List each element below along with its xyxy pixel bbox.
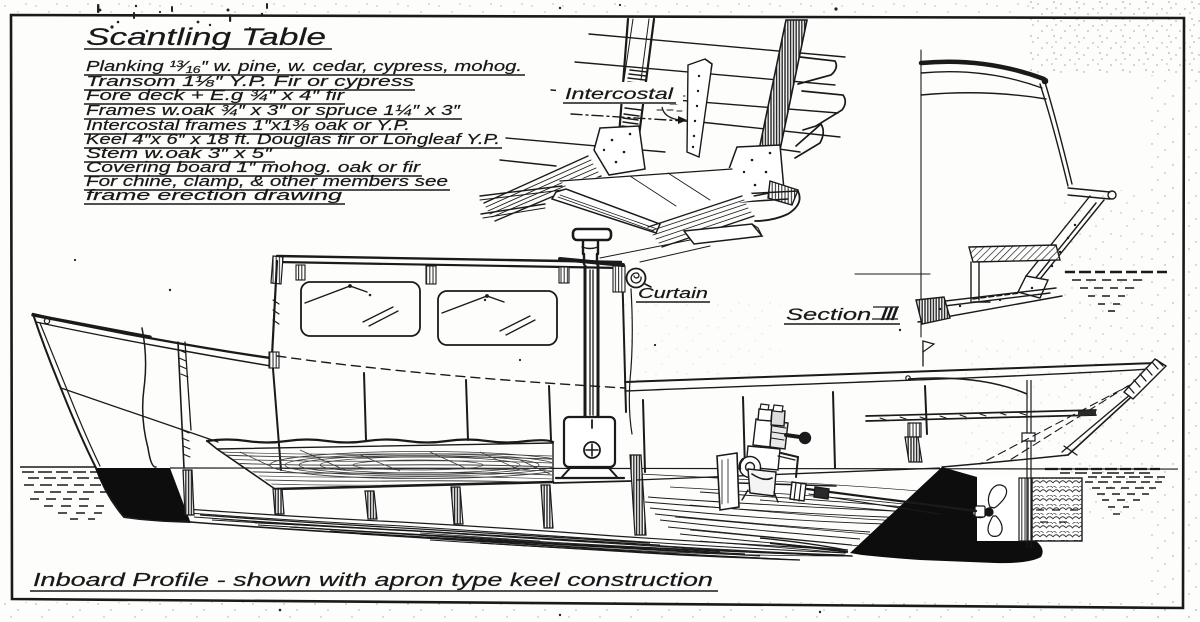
svg-text:Scantling Table: Scantling Table xyxy=(86,24,326,51)
svg-text:Curtain: Curtain xyxy=(638,285,708,302)
svg-text:Section Ⅲ: Section Ⅲ xyxy=(786,305,899,324)
svg-text:Intercostal: Intercostal xyxy=(565,86,674,103)
svg-text:Inboard Profile - shown wi: Inboard Profile - shown with apron type … xyxy=(33,570,713,590)
svg-text:frame erection drawing: frame erection drawing xyxy=(86,187,343,204)
